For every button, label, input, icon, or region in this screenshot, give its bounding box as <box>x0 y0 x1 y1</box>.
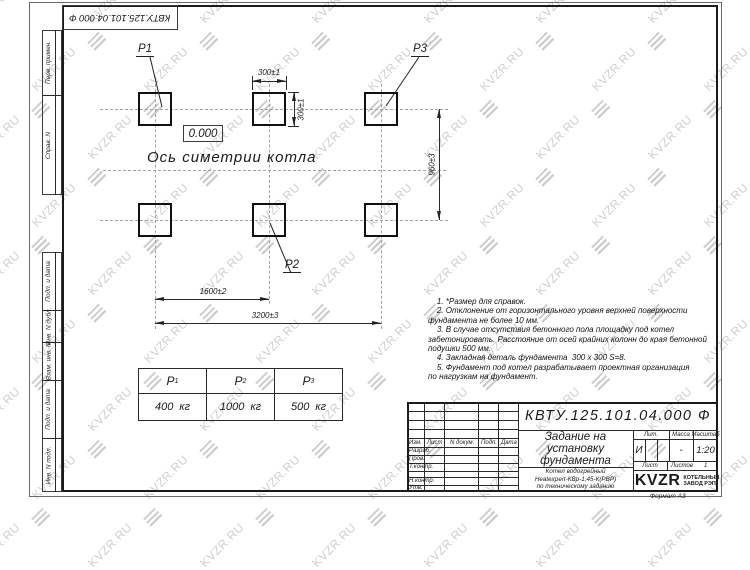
elevation-value: 0.000 <box>189 128 218 140</box>
tb-row-nkontr: Н.контр. <box>409 478 434 484</box>
tb-col-ndok: N докум. <box>450 440 474 446</box>
tb-sheets-value: 1 <box>704 463 707 469</box>
elevation-mark-box: 0.000 <box>183 125 223 142</box>
tb-col-data: Дата <box>501 440 517 446</box>
dim-full-span: 3200±3 <box>235 311 295 320</box>
load-table-header-p3: P3 <box>274 368 343 394</box>
foundation-pad-bottom-right <box>364 203 398 237</box>
dim-row-spacing: 960±3 <box>428 145 437 185</box>
drawing-sheet: KVZR.RUKVZR.RUKVZR.RUKVZR.RUKVZR.RUKVZR.… <box>0 0 750 500</box>
tb-subtitle: Котел водогрейный Heatexpert-КВр-1,45-К(… <box>518 467 633 492</box>
kvzr-logo: KVZR КОТЕЛЬНЫЙ ЗАВОД РЭП <box>633 470 718 492</box>
tb-doc-number: КВТУ.125.101.04.000 Ф <box>518 402 718 430</box>
load-table-header-p2: P2 <box>206 368 275 394</box>
foundation-pad-p3 <box>364 92 398 126</box>
foundation-pad-p2 <box>252 203 286 237</box>
pad-label-p3: P3 <box>411 43 429 57</box>
load-value-p1: 400 кг <box>138 393 207 421</box>
kvzr-logo-text: KVZR <box>635 472 681 490</box>
tb-sheet-label: Лист <box>633 461 667 470</box>
pad-label-p2: P2 <box>283 259 301 273</box>
side-cell-perv-primen: Перв. примен. <box>42 30 55 95</box>
tb-row-prov: Пров. <box>409 456 425 462</box>
top-stamp-doc-number: КВТУ.125.101.04.000 Ф <box>69 12 170 23</box>
side-cell-inv-dubl: Инв. N дубл. <box>42 310 55 342</box>
tb-scale-label: Масштаб <box>693 430 718 439</box>
load-value-p3: 500 кг <box>274 393 343 421</box>
tb-mass-value: - <box>669 439 693 461</box>
tb-lit-label: Лит. <box>633 430 669 439</box>
foundation-pad-bottom-left <box>138 203 172 237</box>
side-cell-vzam-inv: Взам. инв. N <box>42 342 55 380</box>
sheet-content: КВТУ.125.101.04.000 Ф Перв. примен. Спра… <box>0 0 750 500</box>
symmetry-axis-label: Ось симетрии котла <box>147 149 316 166</box>
tb-col-izm: Изм. <box>409 440 422 446</box>
pad-label-p1: P1 <box>136 43 154 57</box>
foundation-pad-top-middle <box>252 92 286 126</box>
top-stamp-box: КВТУ.125.101.04.000 Ф <box>62 5 178 30</box>
dim-pad-height: 300±1 <box>297 90 306 130</box>
tb-col-podp: Подп. <box>481 440 497 446</box>
dim-half-span: 1600±2 <box>183 287 243 296</box>
tb-col-list: Лист <box>427 440 442 446</box>
foundation-pad-p1 <box>138 92 172 126</box>
tb-row-razrab: Разраб. <box>409 448 431 454</box>
load-value-p2: 1000 кг <box>206 393 275 421</box>
side-cell-inv-podl: Инв. N подл. <box>42 438 55 492</box>
tb-row-tkontr: Т.контр. <box>409 464 433 470</box>
side-cell-sprav-n: Справ. N <box>42 95 55 195</box>
kvzr-logo-caption: КОТЕЛЬНЫЙ ЗАВОД РЭП <box>683 475 719 487</box>
tb-sheets-label: Листов <box>671 463 693 469</box>
side-cell-podp-data-2: Подп. и дата <box>42 380 55 438</box>
tb-format-label: Формат А3 <box>650 493 686 500</box>
tb-title: Задание на установку фундамента <box>518 430 633 467</box>
dim-pad-width: 300±1 <box>247 68 291 77</box>
side-cell-podp-data-1: Подп. и дата <box>42 252 55 310</box>
tb-scale-value: 1:20 <box>693 439 718 461</box>
tb-lit-value: И <box>633 439 645 461</box>
load-table-header-p1: P1 <box>138 368 207 394</box>
technical-notes: 1. *Размер для справок. 2. Отклонение от… <box>428 297 720 382</box>
tb-mass-label: Масса <box>669 430 693 439</box>
tb-row-utv: Утв. <box>409 485 423 491</box>
